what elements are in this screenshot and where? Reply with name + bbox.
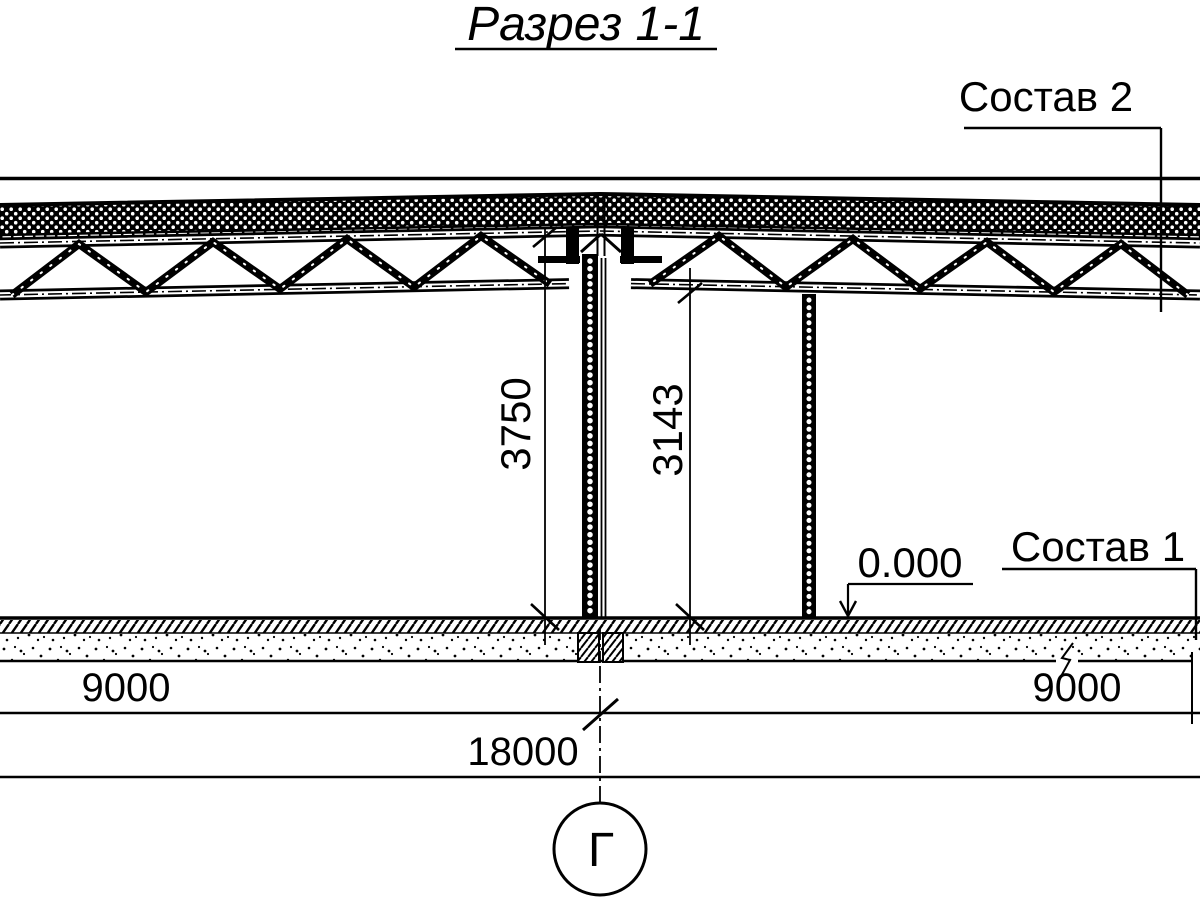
axis-letter: Г [588,824,614,877]
dim-text-9000-left: 9000 [82,666,171,710]
page-title: Разрез 1-1 [467,0,705,51]
foundation-block-right [603,633,623,662]
composition1-label: Состав 1 [1011,523,1185,570]
dim-text-3750: 3750 [492,377,539,470]
partition-body [802,294,816,618]
foundation-block-left [578,633,599,662]
composition2-label: Состав 2 [959,73,1133,120]
title-block: Разрез 1-1 [455,0,717,51]
elevation-text: 0.000 [857,539,962,586]
dim-text-3143: 3143 [644,383,691,476]
center-column [582,254,606,618]
partition-column [802,294,816,618]
dim-text-9000-right: 9000 [1033,666,1122,710]
truss-seat-right [620,256,662,263]
dim-text-18000: 18000 [467,730,578,774]
section-drawing: 3750 3143 0.000 Состав 2 Состав 1 Разрез… [0,0,1200,900]
